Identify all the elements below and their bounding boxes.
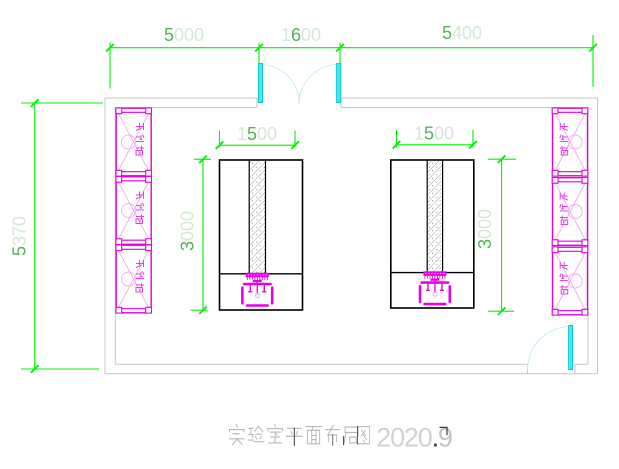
svg-text:1500: 1500 xyxy=(414,124,454,144)
svg-text:1600: 1600 xyxy=(281,25,321,45)
svg-text:3000: 3000 xyxy=(178,211,198,251)
svg-text:5400: 5400 xyxy=(442,23,482,43)
svg-text:5370: 5370 xyxy=(10,216,30,256)
svg-text:1500: 1500 xyxy=(237,124,277,144)
svg-text:3000: 3000 xyxy=(475,209,495,249)
svg-text:5000: 5000 xyxy=(164,25,204,45)
